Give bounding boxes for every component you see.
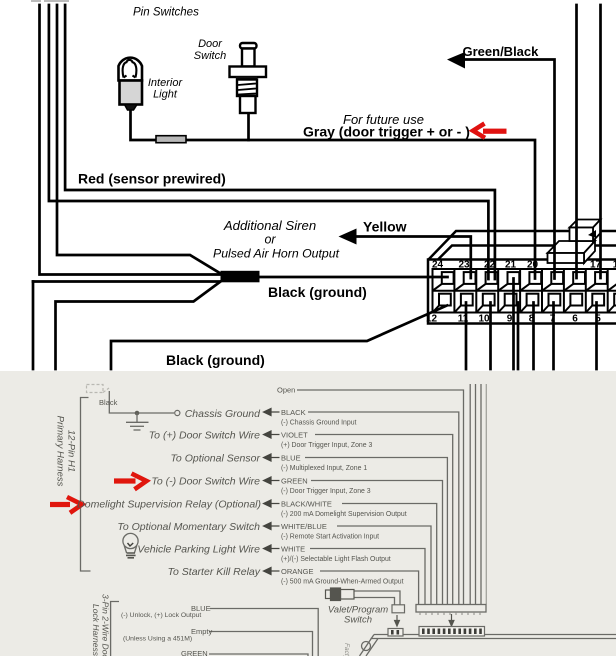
svg-text:To Starter Kill Relay: To Starter Kill Relay xyxy=(168,566,261,578)
svg-text:(-) Door Trigger Input, Zone 3: (-) Door Trigger Input, Zone 3 xyxy=(281,488,371,495)
svg-text:Chassis Ground: Chassis Ground xyxy=(185,408,261,420)
svg-text:ORANGE: ORANGE xyxy=(281,567,314,576)
svg-text:21: 21 xyxy=(505,260,517,271)
svg-text:Black: Black xyxy=(99,398,118,407)
svg-text:Yellow: Yellow xyxy=(363,219,407,235)
svg-text:23: 23 xyxy=(458,260,470,271)
svg-text:Switch: Switch xyxy=(344,615,372,626)
svg-text:(+)/(-) Selectable Light Flash: (+)/(-) Selectable Light Flash Output xyxy=(281,556,391,563)
svg-text:6: 6 xyxy=(572,314,578,325)
svg-text:To Optional Momentary Switch: To Optional Momentary Switch xyxy=(117,521,260,533)
svg-text:Lock Harness: Lock Harness xyxy=(91,604,101,656)
svg-text:(-) Multiplexed Input, Zone 1: (-) Multiplexed Input, Zone 1 xyxy=(281,465,367,472)
svg-text:(-) Unlock, (+) Lock Output: (-) Unlock, (+) Lock Output xyxy=(121,612,201,619)
svg-text:Green/Black: Green/Black xyxy=(463,44,540,59)
svg-text:10: 10 xyxy=(478,314,490,325)
svg-text:Pin Switches: Pin Switches xyxy=(133,7,199,19)
svg-text:12: 12 xyxy=(426,314,438,325)
svg-text:To Optional Sensor: To Optional Sensor xyxy=(170,453,260,465)
svg-text:(-) Chassis Ground Input: (-) Chassis Ground Input xyxy=(281,420,357,427)
svg-text:(+) Door Trigger Input, Zone 3: (+) Door Trigger Input, Zone 3 xyxy=(281,442,373,449)
svg-text:(-) Remote Start Activation In: (-) Remote Start Activation Input xyxy=(281,534,379,541)
svg-text:BLACK/WHITE: BLACK/WHITE xyxy=(281,500,332,509)
svg-text:To (-) Door Switch Wire: To (-) Door Switch Wire xyxy=(151,476,260,488)
svg-text:To (+) Door Switch Wire: To (+) Door Switch Wire xyxy=(149,430,260,442)
svg-text:12-Pin H1: 12-Pin H1 xyxy=(66,430,77,472)
svg-text:Black (ground): Black (ground) xyxy=(268,284,367,300)
svg-text:22: 22 xyxy=(484,260,496,271)
svg-text:or: or xyxy=(264,233,276,247)
svg-text:BLUE: BLUE xyxy=(281,454,301,463)
svg-text:3-Pin 2-Wire Door: 3-Pin 2-Wire Door xyxy=(101,594,111,656)
svg-text:17: 17 xyxy=(590,260,602,271)
svg-text:8: 8 xyxy=(529,314,535,325)
svg-text:Red (sensor prewired): Red (sensor prewired) xyxy=(78,171,226,187)
svg-text:20: 20 xyxy=(527,260,539,271)
svg-text:Gray (door trigger + or - ): Gray (door trigger + or - ) xyxy=(303,124,470,140)
svg-text:24: 24 xyxy=(432,260,444,271)
svg-text:9: 9 xyxy=(507,314,513,325)
svg-text:(Unless Using a 451M): (Unless Using a 451M) xyxy=(123,636,192,643)
svg-text:GREEN: GREEN xyxy=(281,477,308,486)
svg-text:WHITE/BLUE: WHITE/BLUE xyxy=(281,522,327,531)
svg-text:Light: Light xyxy=(153,89,178,101)
svg-text:BLACK: BLACK xyxy=(281,408,306,417)
svg-text:Additional Siren: Additional Siren xyxy=(223,218,316,233)
svg-text:(-) 500 mA Ground-When-Armed O: (-) 500 mA Ground-When-Armed Output xyxy=(281,579,404,586)
svg-text:7: 7 xyxy=(550,314,556,325)
svg-text:GREEN: GREEN xyxy=(181,649,208,656)
svg-text:Door: Door xyxy=(198,38,223,50)
svg-text:Empty: Empty xyxy=(191,627,213,636)
svg-text:11: 11 xyxy=(458,314,469,325)
svg-text:5: 5 xyxy=(595,314,601,325)
svg-text:WHITE: WHITE xyxy=(281,545,305,554)
svg-text:Facty: Facty xyxy=(343,643,350,656)
svg-text:Interior: Interior xyxy=(148,77,184,89)
svg-text:Domelight Supervision Relay (O: Domelight Supervision Relay (Optional) xyxy=(77,499,261,511)
svg-text:Primary Harness: Primary Harness xyxy=(55,416,66,487)
svg-text:(-) 200 mA Domelight Supervisi: (-) 200 mA Domelight Supervision Output xyxy=(281,511,407,518)
svg-text:Black (ground): Black (ground) xyxy=(166,352,265,368)
svg-text:VIOLET: VIOLET xyxy=(281,431,308,440)
svg-text:Vehicle Parking Light Wire: Vehicle Parking Light Wire xyxy=(137,544,260,556)
svg-text:Switch: Switch xyxy=(194,50,226,62)
svg-text:Pulsed Air Horn Output: Pulsed Air Horn Output xyxy=(213,247,340,261)
svg-text:Open: Open xyxy=(277,386,295,395)
